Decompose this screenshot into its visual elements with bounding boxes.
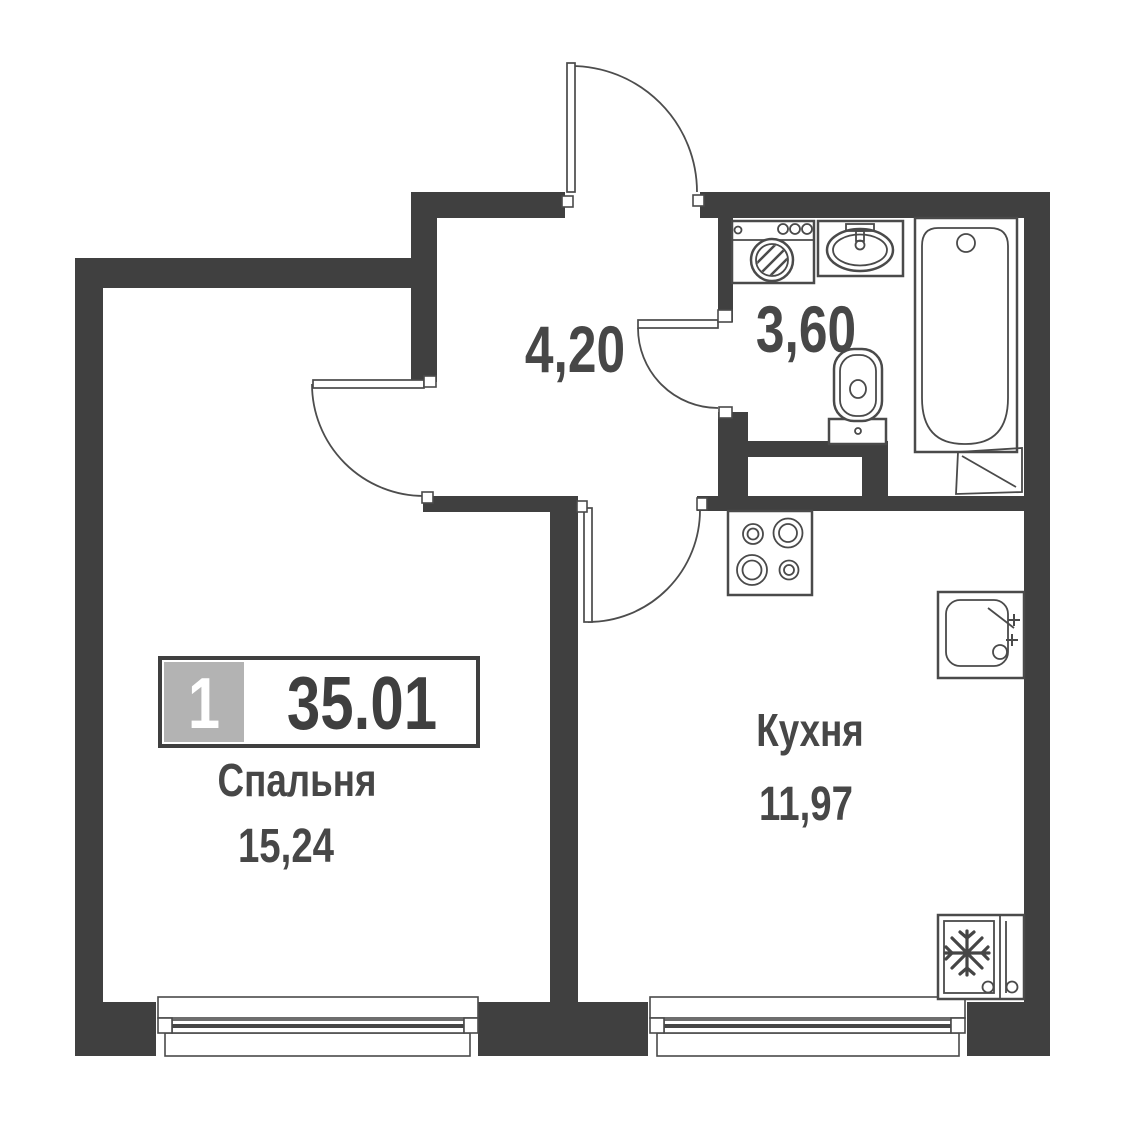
vent-shaft-right <box>862 441 888 501</box>
wall-left <box>75 258 103 1056</box>
unit-number: 1 <box>188 663 220 744</box>
entrance-door <box>562 63 704 207</box>
entrance-door-arc <box>571 66 697 192</box>
refrigerator <box>938 915 1024 999</box>
vent-hatch <box>956 448 1022 494</box>
bathroom-sink <box>818 221 903 276</box>
floor-plan-page: 1 35.01 Спальня 15,24 Кухня 11,97 4,20 3… <box>0 0 1124 1124</box>
kitchen-area-label: 11,97 <box>759 778 853 831</box>
bedroom-door-leaf <box>313 380 424 388</box>
floor-plan-svg: 1 35.01 Спальня 15,24 Кухня 11,97 4,20 3… <box>0 0 1124 1124</box>
bathtub <box>915 218 1017 452</box>
bedroom-door-arc <box>312 384 424 496</box>
wall-bedroom-hall <box>411 192 437 382</box>
snowflake-icon <box>945 931 989 975</box>
washing-machine <box>732 221 814 283</box>
bathroom-door-leaf <box>638 320 718 328</box>
bedroom-window <box>156 996 478 1056</box>
wall-top-right <box>700 192 1050 218</box>
bedroom-name-label: Спальня <box>218 754 377 806</box>
entrance-door-leaf <box>567 63 575 192</box>
hallway-area-label: 4,20 <box>525 312 625 387</box>
bedroom-area-label: 15,24 <box>238 820 334 873</box>
kitchen-name-label: Кухня <box>756 704 864 756</box>
stove <box>728 511 812 595</box>
unit-total-area: 35.01 <box>287 663 437 746</box>
wall-kitchen-north <box>697 496 1024 511</box>
bathroom-area-label: 3,60 <box>756 292 856 367</box>
unit-badge: 1 35.01 <box>160 658 478 746</box>
kitchen-door <box>577 498 707 622</box>
kitchen-sink <box>938 592 1024 678</box>
bathroom-door-arc <box>638 328 718 408</box>
wall-bedroom-kitchen <box>550 496 578 1004</box>
wall-bedroom-top <box>75 258 437 288</box>
bathroom-door <box>638 310 732 418</box>
wall-right <box>1024 192 1050 1056</box>
kitchen-door-arc <box>588 510 700 622</box>
kitchen-window <box>648 996 967 1056</box>
bedroom-door <box>312 376 436 503</box>
kitchen-door-leaf <box>584 508 592 622</box>
